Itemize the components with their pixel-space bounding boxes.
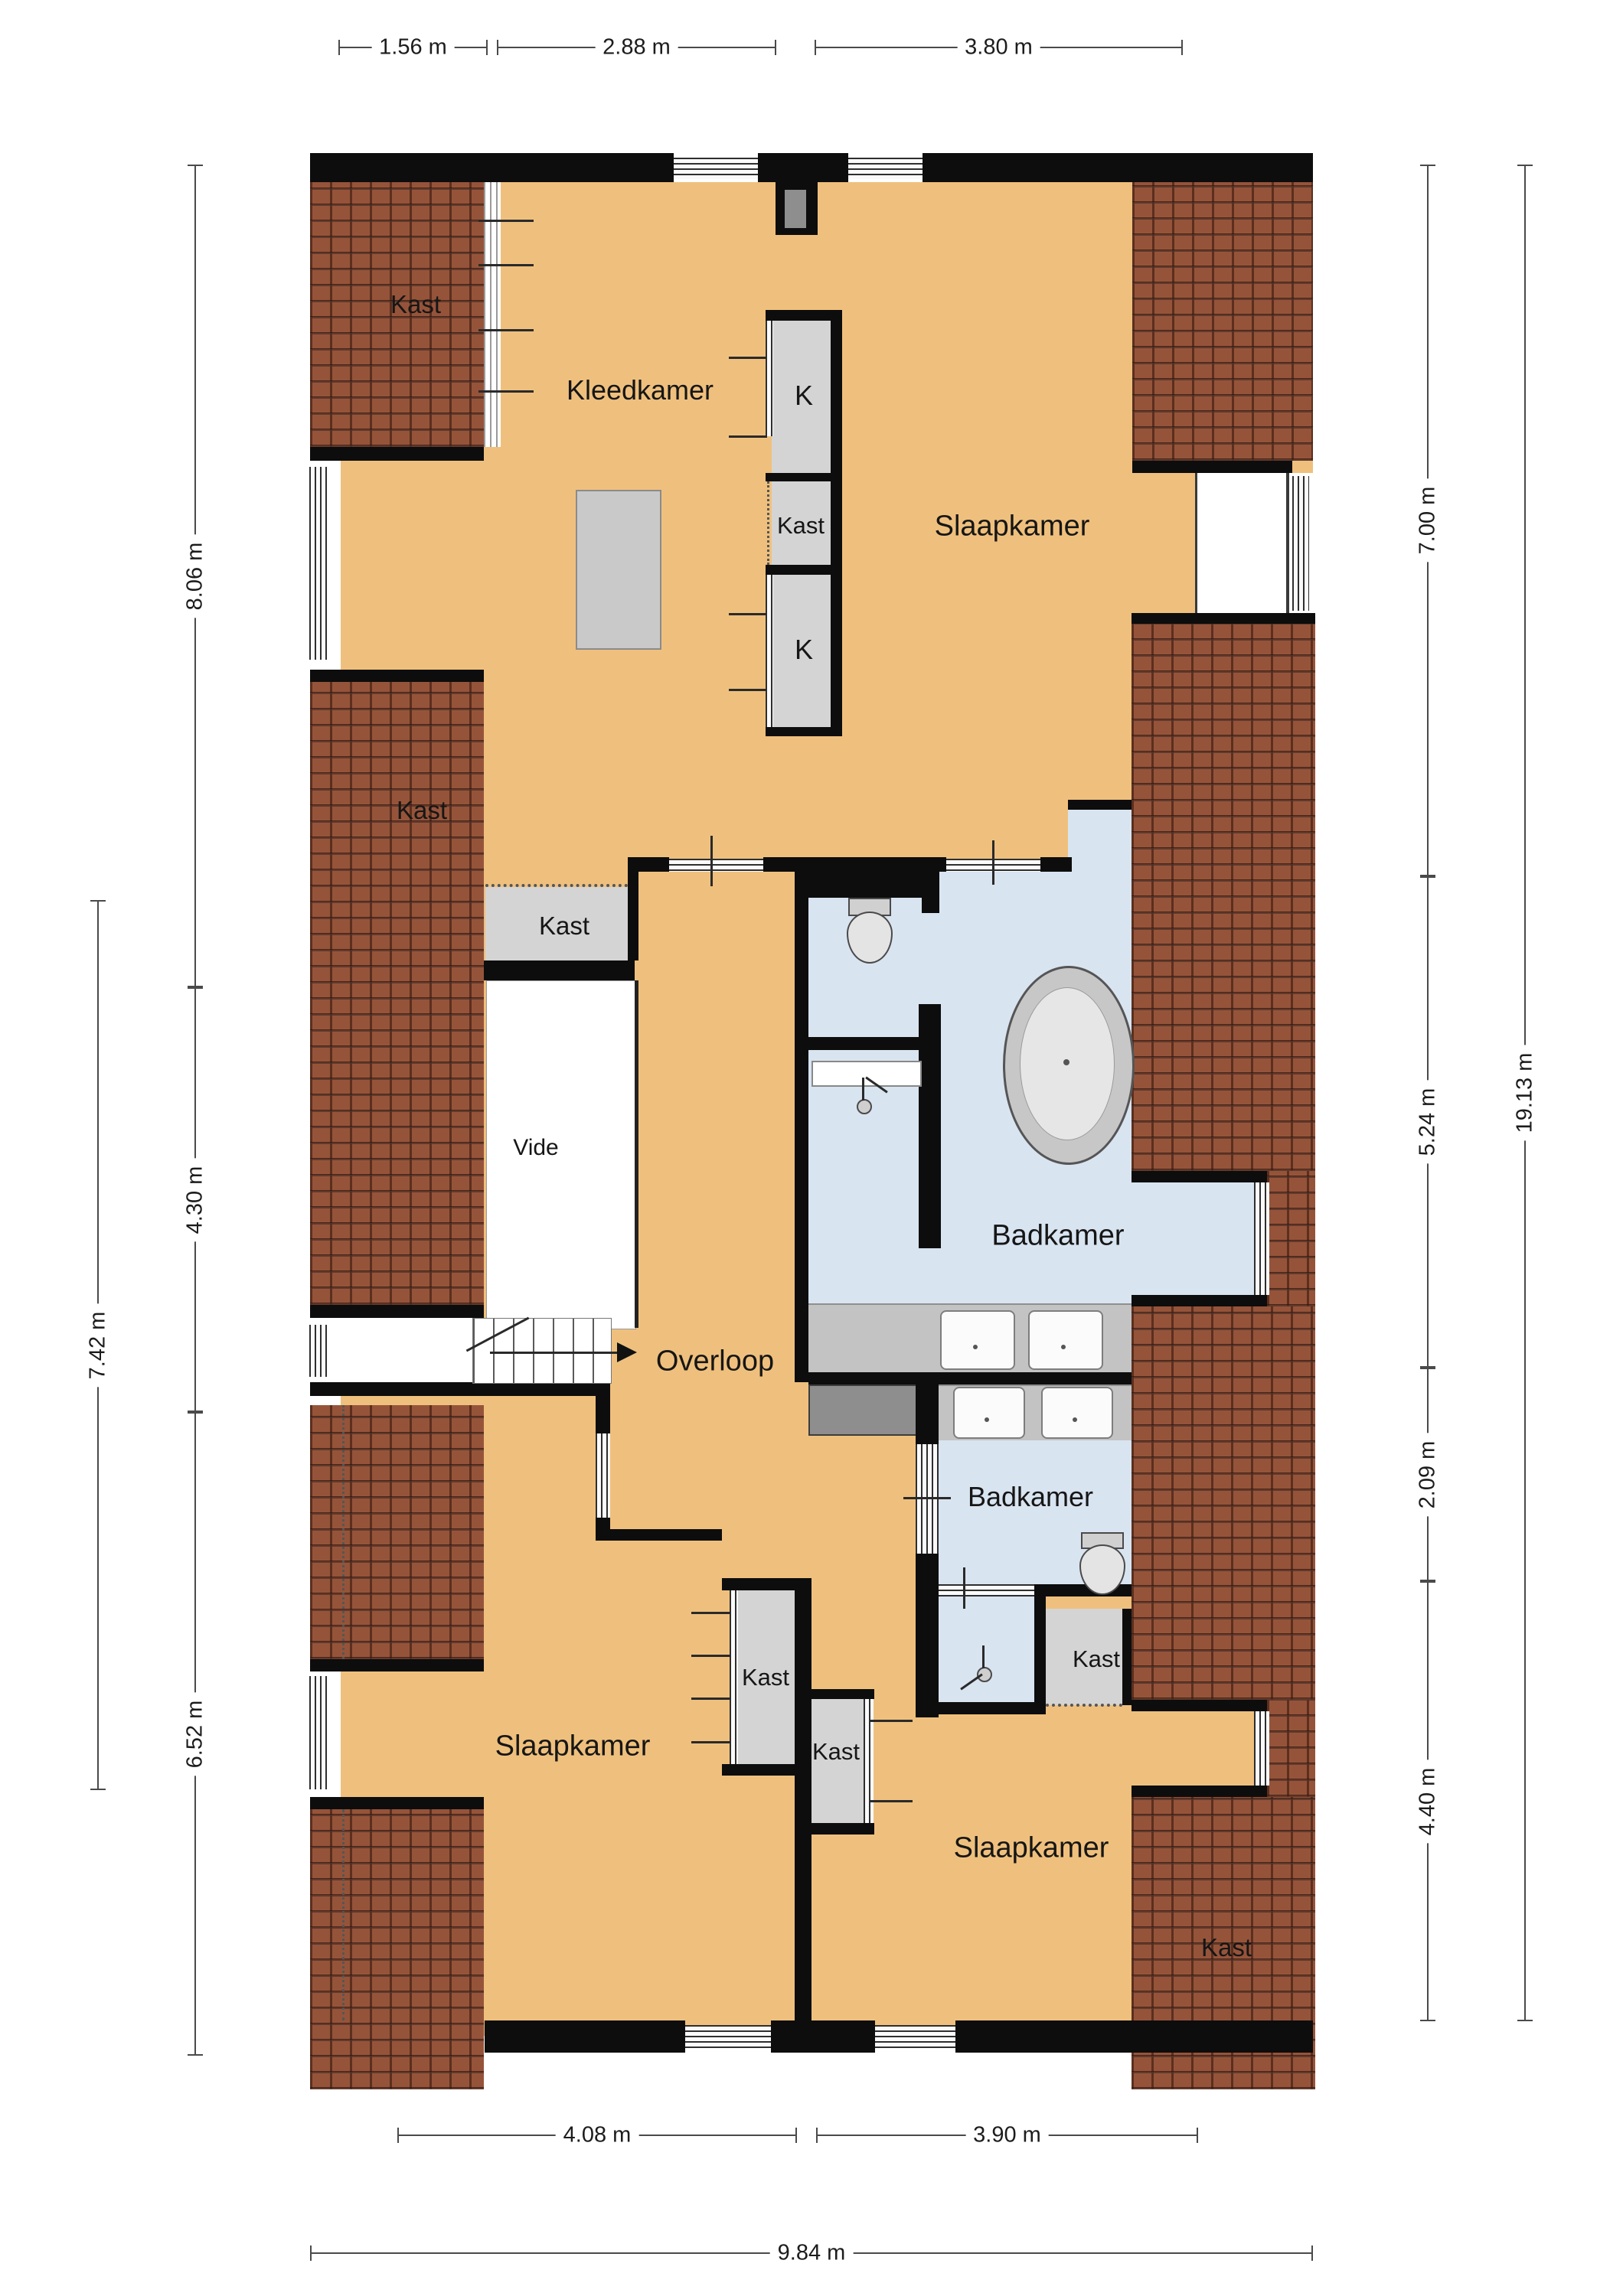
room-label-vide: Vide bbox=[513, 1135, 559, 1161]
dim-right-outer: 19.13 m bbox=[1524, 165, 1526, 2021]
wall-bath2-left-b bbox=[916, 1554, 939, 1717]
room-label-k-bottom: K bbox=[795, 634, 813, 666]
dim-left-outer: 7.42 m bbox=[97, 900, 99, 1790]
wall-left-bar-4 bbox=[310, 1659, 484, 1671]
floorplan-canvas: Kast Kleedkamer K Kast Slaapkamer K Kast… bbox=[0, 0, 1623, 2296]
dim-label-left-outer: 7.42 m bbox=[86, 1303, 111, 1387]
k-column-right-wall bbox=[831, 310, 842, 736]
roof-sliver-right-1 bbox=[1267, 1171, 1315, 1306]
window-terrace bbox=[1292, 476, 1309, 611]
kast-b-tick-2 bbox=[870, 1800, 913, 1802]
dim-label-right-outer: 19.13 m bbox=[1513, 1045, 1538, 1141]
bathtub-drain bbox=[1063, 1059, 1069, 1065]
wall-roof-tr-bottom bbox=[1132, 461, 1292, 473]
bath-cabinet bbox=[808, 1384, 926, 1436]
staircase-arrow-head bbox=[617, 1342, 637, 1362]
dim-bottom-2: 3.90 m bbox=[816, 2135, 1198, 2136]
wall-slaap-bath-c bbox=[1040, 857, 1072, 872]
vide-overloop-line bbox=[635, 980, 638, 1328]
room-label-kast-b: Kast bbox=[812, 1738, 860, 1766]
room-label-slaapkamer-rechts: Slaapkamer bbox=[954, 1832, 1109, 1865]
wall-kast-a-bottom bbox=[722, 1764, 810, 1776]
dim-label-right-2: 5.24 m bbox=[1416, 1081, 1441, 1164]
dim-label-right-3: 2.09 m bbox=[1416, 1433, 1441, 1516]
dim-label-top-1: 1.56 m bbox=[371, 35, 455, 60]
knee-tick-2 bbox=[478, 264, 534, 266]
kleedkamer-table bbox=[576, 490, 661, 650]
kast-b-tick-1 bbox=[870, 1720, 913, 1722]
room-label-kast-roof-br: Kast bbox=[1201, 1933, 1252, 1962]
roof-section-right-lower bbox=[1132, 1306, 1315, 1700]
door-k-top bbox=[766, 321, 773, 436]
shower-head-icon bbox=[857, 1099, 872, 1114]
k-column-bar-1 bbox=[766, 473, 831, 481]
shower-room-floor bbox=[939, 1596, 1034, 1702]
k-column-kast-dotted bbox=[767, 481, 769, 565]
wall-overloop-bl-b bbox=[596, 1518, 610, 1541]
wall-shower-horiz bbox=[808, 1037, 919, 1050]
dim-label-left-3: 6.52 m bbox=[183, 1692, 208, 1776]
kast-overloop-dotted-edge bbox=[485, 884, 628, 887]
window-top-1 bbox=[674, 158, 758, 179]
wall-top-a bbox=[310, 153, 674, 182]
kast-a-tick-2 bbox=[691, 1655, 731, 1657]
wall-overloop-left bbox=[628, 872, 638, 960]
k-bottom-tick-1 bbox=[729, 613, 767, 615]
dim-label-right-4: 4.40 m bbox=[1416, 1760, 1441, 1843]
sink-2b bbox=[1041, 1387, 1113, 1439]
room-label-kast-roof-left: Kast bbox=[397, 796, 447, 825]
room-label-kast-mid: Kast bbox=[777, 512, 825, 540]
wall-shower2-right bbox=[1034, 1596, 1046, 1714]
sink-2a-dot bbox=[985, 1417, 989, 1422]
door-tick-shower2 bbox=[963, 1567, 965, 1609]
room-label-kast-badkamer: Kast bbox=[1073, 1645, 1120, 1673]
dim-label-bottom-2: 3.90 m bbox=[965, 2123, 1049, 2148]
wall-left-bar-5 bbox=[310, 1797, 484, 1809]
badkamer-dormer-alcove bbox=[1132, 1182, 1256, 1295]
wall-dormer1-bottom bbox=[1132, 1295, 1267, 1306]
k-top-tick-2 bbox=[729, 435, 767, 438]
door-shower-room bbox=[939, 1584, 1034, 1596]
wall-left-bar-3 bbox=[310, 1305, 484, 1318]
door-tick-bath2 bbox=[903, 1497, 951, 1499]
dim-right-1: 7.00 m bbox=[1427, 165, 1429, 876]
room-label-badkamer-main: Badkamer bbox=[991, 1220, 1124, 1253]
door-k-bottom bbox=[766, 575, 773, 727]
sink-1b-faucet bbox=[1061, 1345, 1066, 1349]
dim-top-1: 1.56 m bbox=[338, 47, 488, 48]
dim-top-2: 2.88 m bbox=[497, 47, 776, 48]
wall-between-baths bbox=[808, 1372, 1132, 1384]
wall-top-c bbox=[923, 153, 1313, 182]
badkamer-main-niche bbox=[1068, 810, 1132, 872]
sink-1a bbox=[940, 1310, 1015, 1370]
bedroom-left-dotted-2 bbox=[342, 1809, 345, 2020]
dim-top-3: 3.80 m bbox=[815, 47, 1183, 48]
dim-label-left-1: 8.06 m bbox=[183, 534, 208, 618]
wall-shower2-bottom bbox=[916, 1702, 1046, 1714]
wall-dormer1-top bbox=[1132, 1171, 1267, 1182]
kast-a-tick-4 bbox=[691, 1741, 731, 1743]
roof-section-left-lower bbox=[310, 1405, 484, 1659]
window-left-1 bbox=[309, 467, 328, 660]
window-tick-bath bbox=[992, 840, 994, 885]
wall-kast-b-bottom bbox=[810, 1823, 874, 1835]
sink-2b-dot bbox=[1073, 1417, 1077, 1422]
dim-bottom-1: 4.08 m bbox=[397, 2135, 797, 2136]
slaapkamer-terrace-line bbox=[1195, 473, 1197, 613]
wall-bottom-c bbox=[955, 2020, 1313, 2053]
kast-badkamer-dotted-edge bbox=[1046, 1704, 1122, 1707]
wall-bottom-b bbox=[771, 2020, 875, 2053]
wall-kast-b-top bbox=[810, 1689, 874, 1699]
shower-arm-1 bbox=[862, 1078, 864, 1101]
window-dormer-bedroom bbox=[1254, 1711, 1269, 1786]
door-leaf-overloop bbox=[710, 836, 713, 886]
dim-label-bottom-1: 4.08 m bbox=[556, 2123, 639, 2148]
wall-bath2-left-a bbox=[916, 1382, 939, 1444]
room-label-slaapkamer-top: Slaapkamer bbox=[935, 510, 1090, 543]
dim-label-bottom-total: 9.84 m bbox=[770, 2241, 854, 2266]
shower-shelf bbox=[811, 1061, 922, 1087]
roof-section-left-bottom bbox=[310, 1809, 484, 2089]
wall-left-bar-1 bbox=[310, 447, 484, 461]
door-kast-b bbox=[864, 1699, 874, 1823]
wall-toilet-stub bbox=[922, 872, 939, 913]
room-label-kast-overloop: Kast bbox=[539, 912, 589, 941]
wall-slaap-overloop-a bbox=[628, 857, 669, 872]
dim-label-left-2: 4.30 m bbox=[183, 1158, 208, 1241]
k-bottom-tick-2 bbox=[729, 689, 767, 691]
dim-bottom-total: 9.84 m bbox=[310, 2252, 1313, 2254]
wall-left-bar-2 bbox=[310, 670, 484, 682]
dim-label-right-1: 7.00 m bbox=[1416, 479, 1441, 563]
wall-top-b bbox=[758, 153, 848, 182]
wall-bath-niche-top bbox=[1068, 800, 1132, 810]
staircase-arrow-line bbox=[490, 1352, 619, 1354]
bedroom-left-dotted-1 bbox=[342, 1405, 345, 1659]
knee-tick-4 bbox=[478, 390, 534, 393]
sink-2a bbox=[953, 1387, 1025, 1439]
knee-tick-3 bbox=[478, 329, 534, 331]
dim-label-top-2: 2.88 m bbox=[595, 35, 678, 60]
dim-left-1: 8.06 m bbox=[194, 165, 196, 987]
wall-slaap-bath-b bbox=[763, 857, 946, 872]
floor-dormer-bedroom bbox=[1132, 1711, 1256, 1786]
k-top-tick-1 bbox=[729, 357, 767, 359]
room-label-k-top: K bbox=[795, 380, 813, 412]
wall-vide-top bbox=[484, 960, 635, 980]
wall-dormer2-bottom bbox=[1132, 1786, 1267, 1797]
dim-label-top-3: 3.80 m bbox=[957, 35, 1040, 60]
room-label-kast-a: Kast bbox=[742, 1664, 789, 1691]
dim-right-3: 2.09 m bbox=[1427, 1368, 1429, 1581]
door-kast-a bbox=[730, 1590, 738, 1764]
shower2-arm-1 bbox=[982, 1645, 985, 1668]
wall-stair-bottom bbox=[310, 1382, 610, 1396]
window-bottom-left bbox=[685, 2025, 771, 2048]
wall-bedroom-divider bbox=[795, 1578, 811, 2028]
dim-right-2: 5.24 m bbox=[1427, 876, 1429, 1368]
dim-left-3: 6.52 m bbox=[194, 1412, 196, 2056]
window-top-2 bbox=[848, 158, 923, 179]
kast-a-tick-3 bbox=[691, 1698, 731, 1700]
wall-bottom-a bbox=[485, 2020, 685, 2053]
roof-section-left-mid bbox=[310, 682, 484, 1305]
staircase bbox=[472, 1318, 612, 1384]
wall-bath-left bbox=[795, 898, 808, 1382]
k-column-bar-2 bbox=[766, 565, 831, 575]
wall-overloop-bl-a bbox=[596, 1396, 610, 1433]
wall-dormer2-top bbox=[1132, 1700, 1267, 1711]
chimney-flue bbox=[785, 190, 806, 228]
window-left-3 bbox=[309, 1676, 328, 1789]
room-label-kast-roof-tl: Kast bbox=[390, 290, 441, 319]
sink-1a-faucet bbox=[973, 1345, 978, 1349]
window-dormer-bath bbox=[1254, 1182, 1269, 1295]
dim-left-2: 4.30 m bbox=[194, 987, 196, 1412]
wall-overloop-bl-horiz bbox=[610, 1529, 722, 1541]
window-bottom-right bbox=[875, 2025, 955, 2048]
wall-roof-rmid-top bbox=[1132, 613, 1315, 624]
sink-1b bbox=[1028, 1310, 1103, 1370]
terrace-edge-line bbox=[1286, 473, 1289, 613]
wall-shower-vert bbox=[919, 1004, 941, 1248]
roof-section-topright bbox=[1132, 182, 1313, 461]
dim-right-4: 4.40 m bbox=[1427, 1581, 1429, 2021]
room-label-kleedkamer: Kleedkamer bbox=[567, 374, 714, 406]
room-label-slaapkamer-links: Slaapkamer bbox=[495, 1730, 651, 1763]
door-slaapkamer-overloop bbox=[669, 859, 763, 872]
wall-toilet-back bbox=[795, 872, 922, 898]
door-overloop-slaapkamer-links bbox=[596, 1433, 610, 1518]
roof-section-right-mid bbox=[1132, 624, 1315, 1171]
knee-tick-1 bbox=[478, 220, 534, 222]
kast-a-tick-1 bbox=[691, 1612, 731, 1614]
wall-kast-bath-right bbox=[1122, 1609, 1132, 1705]
vide-void bbox=[486, 980, 636, 1329]
window-left-2 bbox=[309, 1325, 328, 1377]
room-label-badkamer-klein: Badkamer bbox=[968, 1481, 1093, 1513]
room-label-overloop: Overloop bbox=[656, 1345, 774, 1378]
roof-sliver-right-2 bbox=[1267, 1700, 1315, 1797]
